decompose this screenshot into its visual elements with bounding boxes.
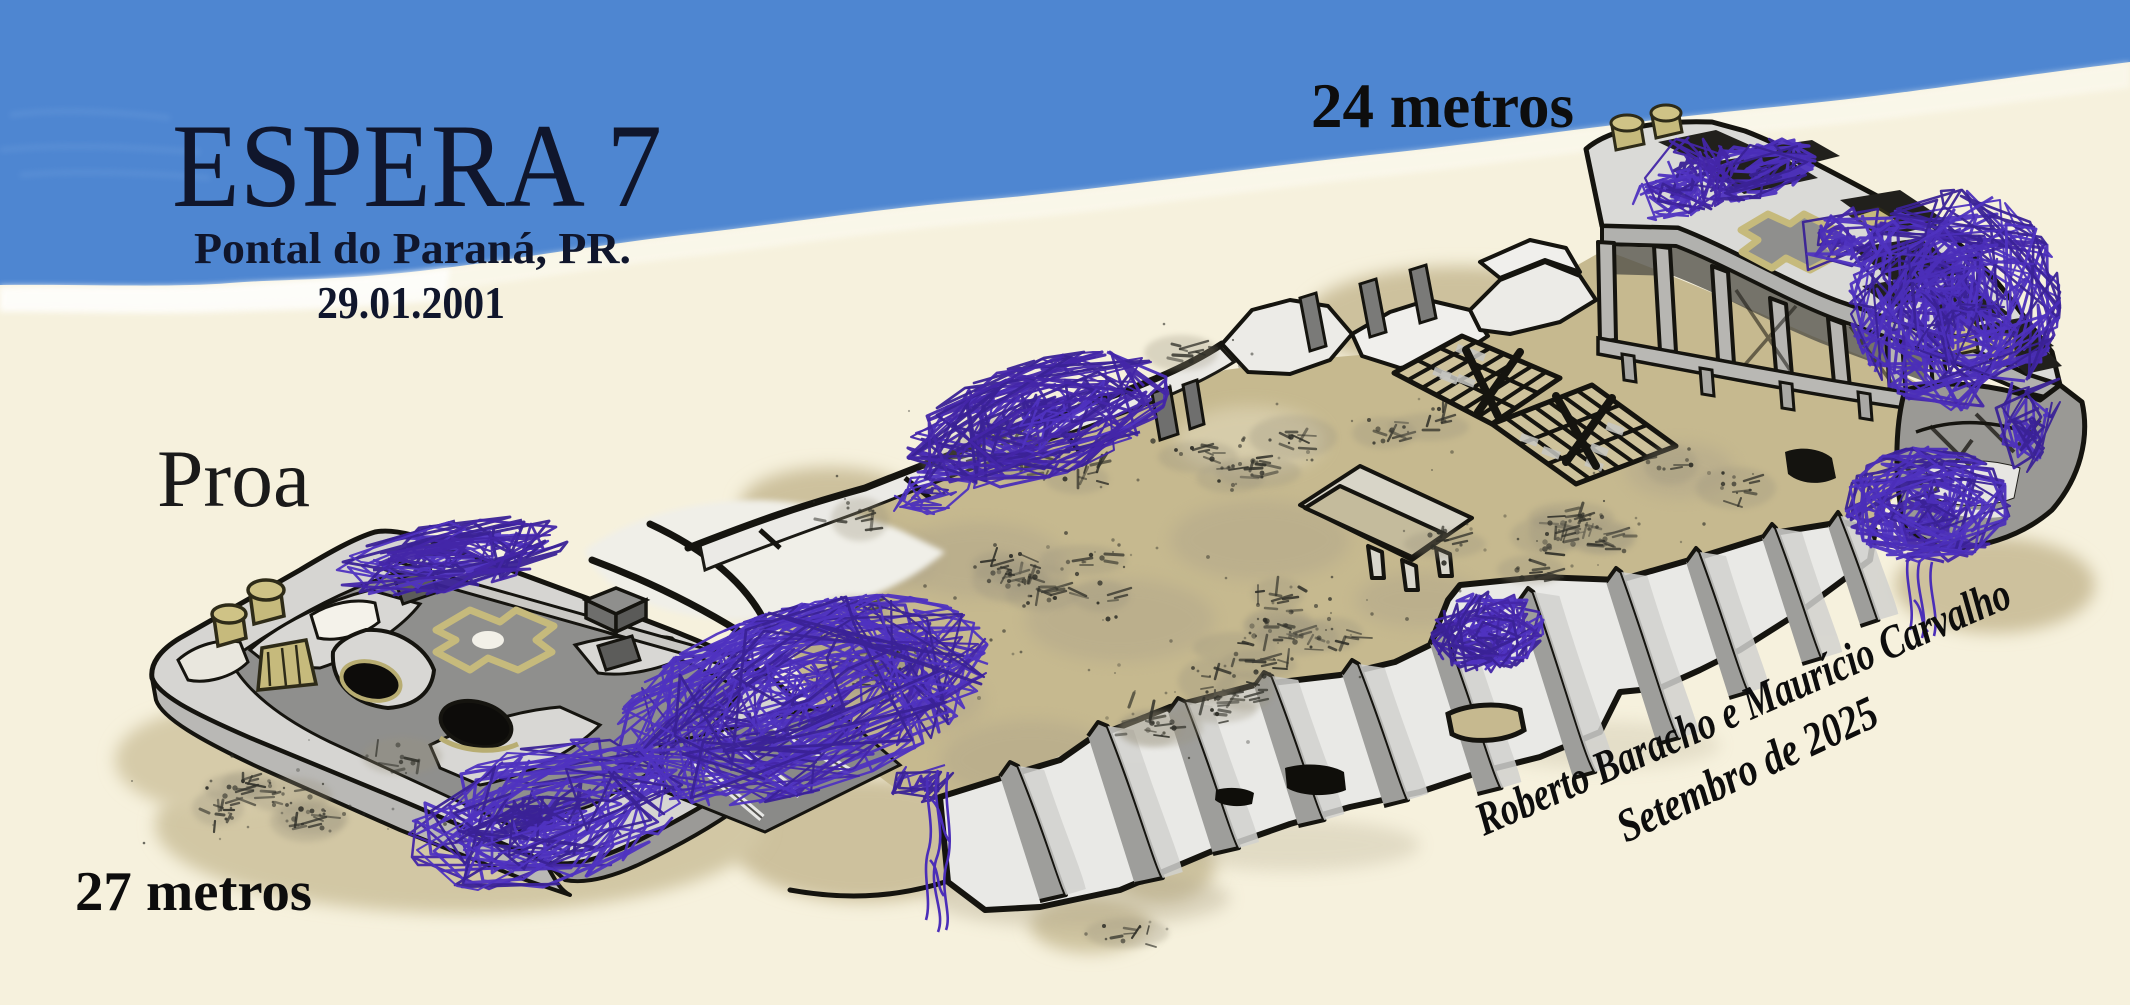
svg-text:Pontal do Paraná, PR.: Pontal do Paraná, PR. [194,224,631,273]
svg-text:29.01.2001: 29.01.2001 [317,277,505,328]
svg-text:Proa: Proa [157,433,310,524]
svg-text:ESPERA 7: ESPERA 7 [172,99,662,232]
svg-text:27 metros: 27 metros [75,861,312,923]
svg-text:24 metros: 24 metros [1311,70,1574,141]
